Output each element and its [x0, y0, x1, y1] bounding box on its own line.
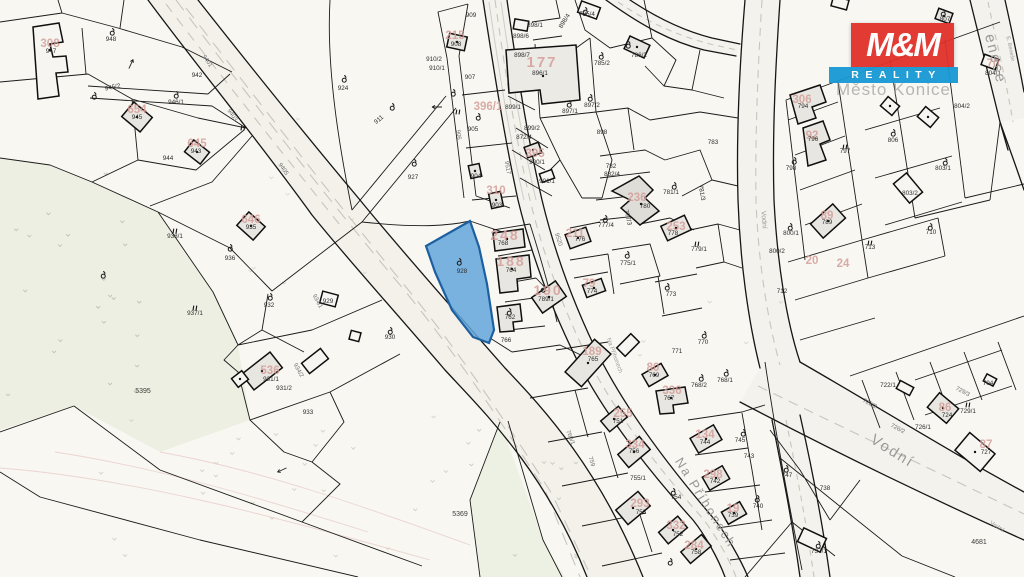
parcel-number-label: 908: [451, 41, 462, 48]
parcel-number-label: 798: [786, 165, 797, 172]
parcel-number-label: 931/1: [263, 376, 279, 383]
parcel-number-label: 896/1: [532, 70, 548, 77]
parcel-number-label: 924: [338, 85, 349, 92]
parcel-number-label: 5369: [452, 511, 468, 518]
parcel-number-label: 904: [471, 173, 482, 180]
building: [349, 330, 361, 341]
parcel-number-label: 872/4: [516, 134, 532, 141]
parcel-number-label: 740: [753, 503, 764, 510]
parcel-number-label: 739: [728, 512, 739, 519]
building-dot: [889, 105, 891, 107]
parcel-number-label: 944: [163, 155, 174, 162]
parcel-number-label: 807: [940, 16, 951, 23]
house-number-label: 396/1: [474, 101, 503, 113]
parcel-number-label: 797: [840, 148, 851, 155]
house-number-label: 24: [837, 258, 850, 270]
parcel-number-label: 899/1: [505, 104, 521, 111]
parcel-number-label: 771: [672, 348, 683, 355]
parcel-number-label: 768/1: [717, 377, 733, 384]
parcel-number-label: 713: [865, 244, 876, 251]
building-dot: [495, 199, 497, 201]
parcel-number-label: 770: [698, 339, 709, 346]
parcel-number-label: 931/2: [276, 385, 292, 392]
parcel-number-label: 899/2: [524, 125, 540, 132]
parcel-number-label: 800/2: [769, 248, 785, 255]
parcel-number-label: 765: [588, 356, 599, 363]
parcel-number-label: 778: [668, 230, 679, 237]
building-dot: [974, 451, 976, 453]
parcel-number-label: 777/4: [598, 222, 614, 229]
building-dot: [636, 46, 638, 48]
parcel-number-label: 933: [303, 409, 314, 416]
parcel-number-label: 751: [613, 418, 624, 425]
parcel-number-label: 936: [225, 255, 236, 262]
house-number-label: 177: [526, 54, 557, 71]
parcel-number-label: 910/1: [429, 65, 445, 72]
parcel-number-label: 764: [506, 267, 517, 274]
parcel-number-label: 768: [498, 240, 509, 247]
parcel-number-label: 704: [983, 380, 994, 387]
parcel-number-label: 767: [664, 395, 675, 402]
parcel-number-label: 938/1: [167, 233, 183, 240]
building-dot: [474, 170, 476, 172]
parcel-number-label: 710: [926, 229, 937, 236]
parcel-number-label: 747: [782, 472, 793, 479]
parcel-number-label: 781/1: [663, 189, 679, 196]
parcel-number-label: 942: [192, 72, 203, 79]
parcel-number-label: 903: [492, 202, 503, 209]
parcel-number-label: 806: [888, 137, 899, 144]
parcel-number-label: 722/1: [880, 382, 896, 389]
house-number-label: 20: [806, 255, 819, 267]
parcel-number-label: 937/1: [187, 310, 203, 317]
parcel-number-label: 745: [735, 437, 746, 444]
parcel-number-label: 776: [575, 236, 586, 243]
parcel-number-label: 744: [700, 439, 711, 446]
parcel-number-label: 800/1: [783, 230, 799, 237]
parcel-number-label: 768/2: [691, 382, 707, 389]
parcel-number-label: 929: [323, 298, 334, 305]
parcel-number-label: 727: [981, 449, 992, 456]
building-dot: [239, 378, 241, 380]
parcel-number-label: 755/1: [630, 475, 646, 482]
parcel-number-label: 945: [132, 114, 143, 121]
parcel-number-label: 785/2: [594, 60, 610, 67]
parcel-number-label: 796: [808, 136, 819, 143]
parcel-number-label: 905: [468, 126, 479, 133]
parcel-number-label: 782: [606, 163, 617, 170]
parcel-number-label: 5395: [135, 388, 151, 395]
parcel-number-label: 753: [636, 509, 647, 516]
parcel-number-label: 803/2: [902, 190, 918, 197]
cadastral-map-canvas: 308215654645646536177396/139531024818819…: [0, 0, 1024, 577]
parcel-number-label: 789/1: [538, 296, 554, 303]
parcel-number-label: 724: [942, 412, 953, 419]
parcel-number-label: 737/1: [811, 548, 827, 555]
parcel-number-label: 743: [744, 453, 755, 460]
parcel-number-label: 769: [649, 372, 660, 379]
parcel-number-label: 726/1: [915, 424, 931, 431]
parcel-number-label: 935: [246, 224, 257, 231]
parcel-number-label: 789: [822, 219, 833, 226]
parcel-number-label: 910/2: [426, 56, 442, 63]
mm-reality-logo: M&M: [851, 23, 954, 67]
parcel-number-label: 882/4: [604, 171, 620, 178]
parcel-number-label: 909: [466, 12, 477, 19]
parcel-number-label: 804/2: [954, 103, 970, 110]
parcel-number-label: 785/4: [579, 11, 595, 18]
parcel-number-label: 780: [640, 203, 651, 210]
parcel-number-label: 901/1: [539, 178, 555, 185]
parcel-number-label: 943: [191, 148, 202, 155]
parcel-number-label: 794: [798, 103, 809, 110]
parcel-number-label: 742: [710, 478, 721, 485]
logo-mm-text: M&M: [866, 26, 939, 64]
parcel-number-label: 783: [708, 139, 719, 146]
parcel-number-label: 774: [587, 288, 598, 295]
parcel-number-label: 898: [597, 129, 608, 136]
parcel-number-label: 898/1: [527, 22, 543, 29]
parcel-number-label: 897/1: [562, 108, 578, 115]
parcel-number-label: 4681: [971, 539, 987, 546]
parcel-number-label: 930: [385, 334, 396, 341]
parcel-number-label: 928: [457, 268, 468, 275]
parcel-number-label: 946/1: [168, 99, 184, 106]
parcel-number-label: 729/1: [960, 408, 976, 415]
parcel-number-label: 786/2: [631, 52, 647, 59]
parcel-number-label: 773: [666, 291, 677, 298]
parcel-number-label: 758: [691, 549, 702, 556]
building-dot: [927, 116, 929, 118]
house-number-label: 310: [486, 185, 505, 197]
parcel-number-label: 948: [106, 36, 117, 43]
parcel-number-label: 752: [673, 531, 684, 538]
parcel-number-label: 947: [46, 48, 57, 55]
parcel-number-label: 898/7: [514, 52, 530, 59]
parcel-number-label: 900/1: [529, 159, 545, 166]
parcel-number-label: 803/1: [935, 165, 951, 172]
parcel-number-label: 898/6: [513, 33, 529, 40]
street-name-label: Vodní: [759, 211, 767, 229]
parcel-number-label: 756: [629, 448, 640, 455]
parcel-number-label: 907: [465, 74, 476, 81]
parcel-number-label: 754: [671, 494, 682, 501]
parcel-number-label: 897/2: [584, 102, 600, 109]
parcel-number-label: 738: [820, 485, 831, 492]
parcel-number-label: 712: [777, 288, 788, 295]
parcel-number-label: 762: [505, 314, 516, 321]
watermark: Město Konice: [836, 80, 1024, 100]
parcel-number-label: 779/1: [691, 246, 707, 253]
parcel-number-label: 766: [501, 337, 512, 344]
parcel-number-label: 775/1: [620, 260, 636, 267]
parcel-number-label: 927: [408, 174, 419, 181]
parcel-number-label: 932: [264, 302, 275, 309]
